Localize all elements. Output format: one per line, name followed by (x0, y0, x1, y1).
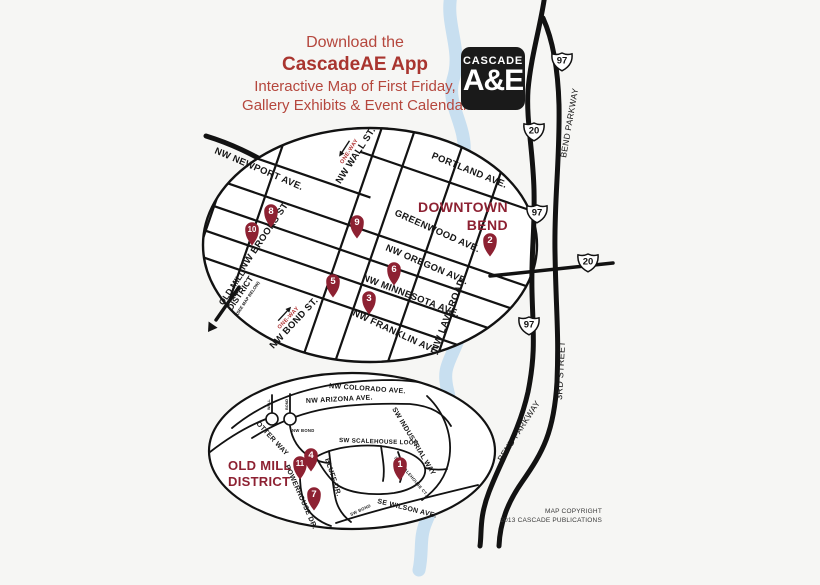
logo-ae-text: A&E (461, 67, 525, 95)
highway-label-bend-parkway: BEND PARKWAY (495, 398, 542, 463)
pin-number: 7 (311, 489, 316, 500)
downtown-bend-title-1: BEND (467, 217, 508, 233)
shield-number: 97 (524, 320, 535, 331)
old-mill-direction-arrowhead (208, 322, 218, 333)
highway-label-3rd-street: 3RD STREET (554, 340, 567, 400)
pin-number: 8 (268, 206, 273, 217)
map-copyright: MAP COPYRIGHT 2013 CASCADE PUBLICATIONS (500, 507, 602, 525)
map-graphic: WALLBOND9720972097BEND PARKWAY3RD STREET… (0, 0, 820, 585)
shield-number: 97 (532, 208, 543, 219)
shield-number: 97 (557, 56, 568, 67)
old-mill-district-title-0: OLD MILL (228, 458, 292, 473)
copyright-line-1: MAP COPYRIGHT (500, 507, 602, 516)
pin-number: 4 (308, 450, 314, 461)
pin-number: 10 (248, 225, 257, 234)
pin-number: 1 (397, 459, 403, 470)
roundabout-bond (284, 413, 296, 425)
roundabout-wall (266, 413, 278, 425)
pin-number: 11 (296, 459, 305, 468)
highway-shield-97-4: 97 (519, 317, 539, 335)
highway-shield-20-3: 20 (578, 254, 598, 272)
old-mill-district-title-1: DISTRICT (228, 474, 290, 489)
roundabout-label-bond: BOND (285, 399, 289, 410)
pin-number: 5 (330, 276, 336, 287)
street-label-nw-bond: NW BOND (292, 428, 315, 433)
pin-number: 6 (391, 264, 396, 275)
cascade-ae-logo: CASCADE A&E (461, 47, 525, 110)
copyright-line-2: 2013 CASCADE PUBLICATIONS (500, 516, 602, 525)
shield-number: 20 (529, 126, 540, 137)
pin-number: 3 (366, 293, 371, 304)
shield-number: 20 (583, 257, 594, 268)
downtown-bend-title-0: DOWNTOWN (418, 199, 508, 215)
pin-number: 2 (487, 235, 492, 246)
roundabout-label-wall: WALL (267, 399, 271, 410)
highway-shield-20-1: 20 (524, 123, 544, 141)
pin-number: 9 (354, 217, 359, 228)
